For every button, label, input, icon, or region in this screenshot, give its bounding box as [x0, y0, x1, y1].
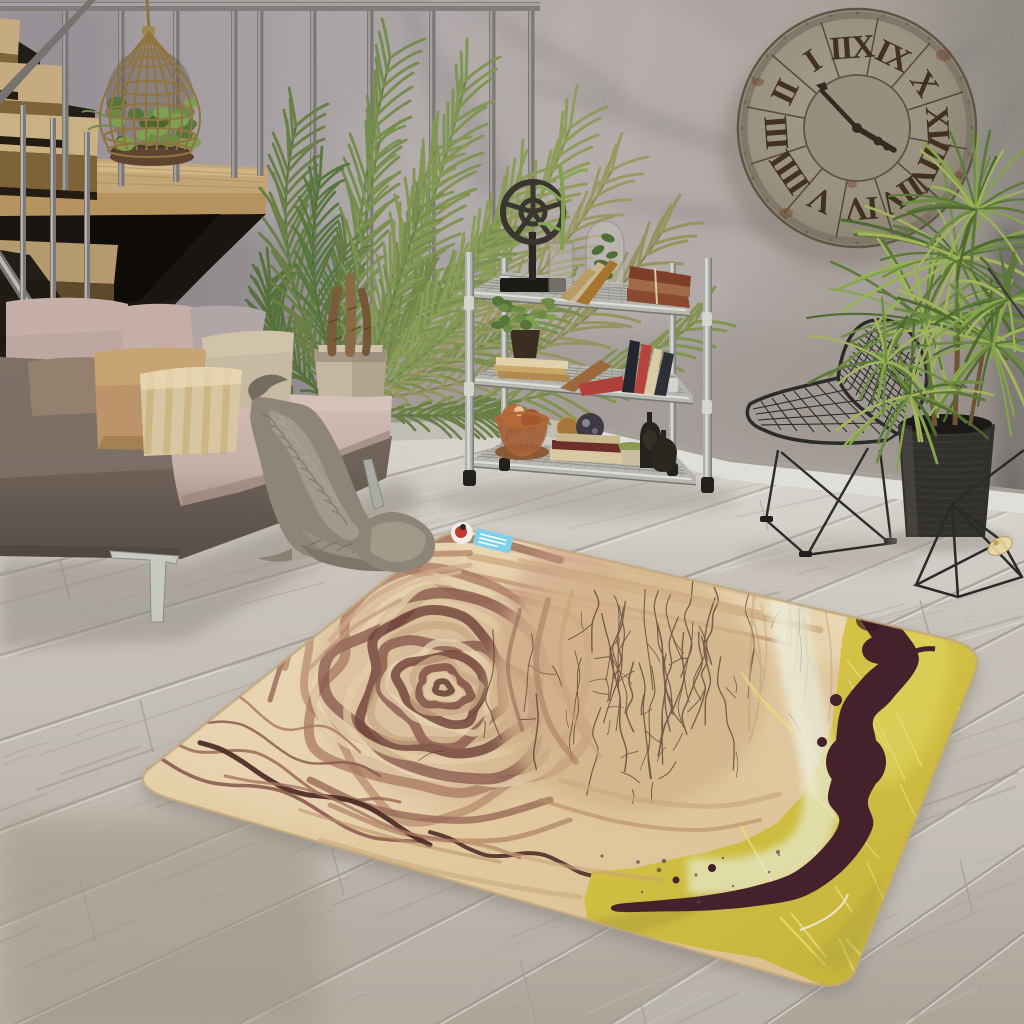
- svg-text:IIX: IIX: [828, 29, 876, 68]
- svg-text:III: III: [758, 115, 796, 151]
